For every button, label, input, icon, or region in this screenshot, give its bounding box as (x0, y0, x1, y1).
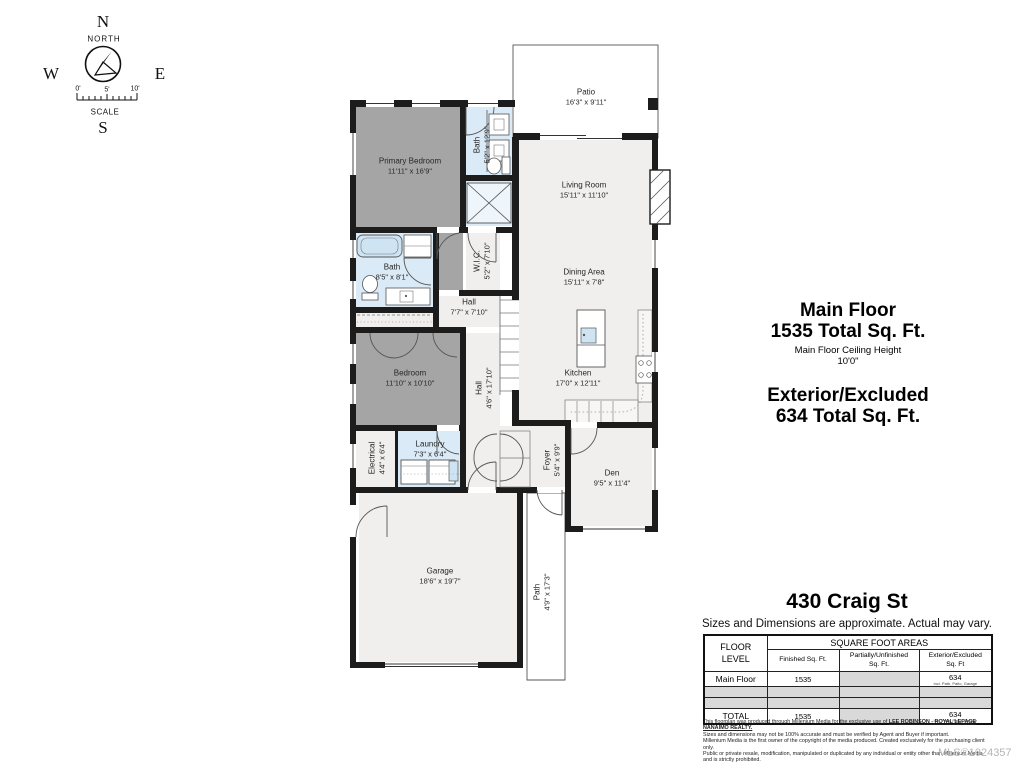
col-header-partial: Partially/Unfinished Sq. Ft. (839, 650, 919, 672)
room-label-patio: Patio 16'3" x 9'11" (566, 87, 607, 106)
room-label-dining-area: Dining Area 15'11" x 7'8" (563, 267, 604, 286)
main-floor-title: Main Floor (718, 300, 978, 321)
kitchen-island (577, 310, 605, 367)
room-label-hall-upper: Hall 7'7" x 7'10" (451, 297, 488, 316)
exterior-title: Exterior/Excluded (718, 385, 978, 406)
table-row-empty (704, 698, 992, 709)
room-label-kitchen: Kitchen 17'0" x 12'11" (556, 368, 601, 387)
room-label-path: Path 4'9" x 17'3" (532, 574, 551, 611)
partial-value (839, 672, 919, 687)
address-title: 430 Craig St (703, 590, 991, 614)
ceiling-height-value: 10'0" (718, 356, 978, 367)
exterior-value: 634 Incl. Path, Patio, Garage (919, 672, 992, 687)
scale-tick-10: 10' (130, 86, 139, 93)
scale-label: SCALE (91, 108, 120, 117)
room-label-bedroom: Bedroom 11'10" x 10'10" (386, 368, 435, 387)
exterior-note: Incl. Path, Patio, Garage (920, 682, 992, 686)
room-label-garage: Garage 18'6" x 19'7" (419, 566, 460, 585)
room-label-hall-lower: Hall 4'6" x 17'10" (474, 367, 493, 408)
exterior-sqft: 634 Total Sq. Ft. (718, 406, 978, 427)
room-label-bath-main: Bath 8'5" x 8'1" (376, 262, 409, 281)
room-label-bath-top: Bath 5'2" x 12'9" (472, 127, 491, 164)
compass-north-label: NORTH (87, 35, 120, 44)
room-label-living-room: Living Room 15'11" x 11'10" (560, 180, 608, 199)
row-label: Main Floor (704, 672, 767, 687)
area-summary: Main Floor 1535 Total Sq. Ft. Main Floor… (718, 300, 978, 428)
room-label-den: Den 9'5" x 11'4" (594, 468, 630, 487)
table-row-empty (704, 687, 992, 698)
compass-rose-icon (86, 47, 121, 82)
approx-note: Sizes and Dimensions are approximate. Ac… (697, 618, 997, 630)
table-row-main-floor: Main Floor 1535 634 Incl. Path, Patio, G… (704, 672, 992, 687)
group-header-square-foot-areas: SQUARE FOOT AREAS (767, 635, 992, 650)
laundry-fixtures (400, 460, 460, 484)
fireplace-icon (650, 170, 670, 224)
finished-value: 1535 (767, 672, 839, 687)
col-header-finished: Finished Sq. Ft. (767, 650, 839, 672)
compass-s-label: S (98, 118, 107, 138)
col-header-exterior: Exterior/Excluded Sq. Ft (919, 650, 992, 672)
scale-bar-icon (77, 93, 137, 100)
room-label-electrical: Electrical 4'4" x 6'4" (367, 442, 386, 475)
scale-tick-5: 5' (104, 87, 109, 94)
room-label-laundry: Laundry 7'3" x 6'4" (414, 439, 447, 458)
ceiling-height-label: Main Floor Ceiling Height (718, 345, 978, 356)
disclaimer-line-1: This floorplan was produced through Mill… (703, 719, 993, 732)
scale-tick-0: 0' (75, 86, 80, 93)
mls-number: MLS®1024357 (938, 747, 1012, 759)
col-header-floor-level: FLOOR LEVEL (704, 635, 767, 672)
room-label-foyer: Foyer 5'4" x 9'9" (542, 444, 561, 477)
main-floor-sqft: 1535 Total Sq. Ft. (718, 321, 978, 342)
square-foot-areas-table: FLOOR LEVEL SQUARE FOOT AREAS Finished S… (703, 634, 993, 725)
compass-n-label: N (97, 12, 109, 32)
room-label-primary-bedroom: Primary Bedroom 11'11" x 16'9" (379, 156, 441, 175)
room-label-wic: W.I.C. 5'2" x 7'10" (472, 243, 491, 280)
compass-e-label: E (155, 64, 165, 84)
floorplan-page: N NORTH W E S 0' 5' 10' SCALE Primary Be… (0, 0, 1024, 768)
compass-w-label: W (43, 64, 59, 84)
